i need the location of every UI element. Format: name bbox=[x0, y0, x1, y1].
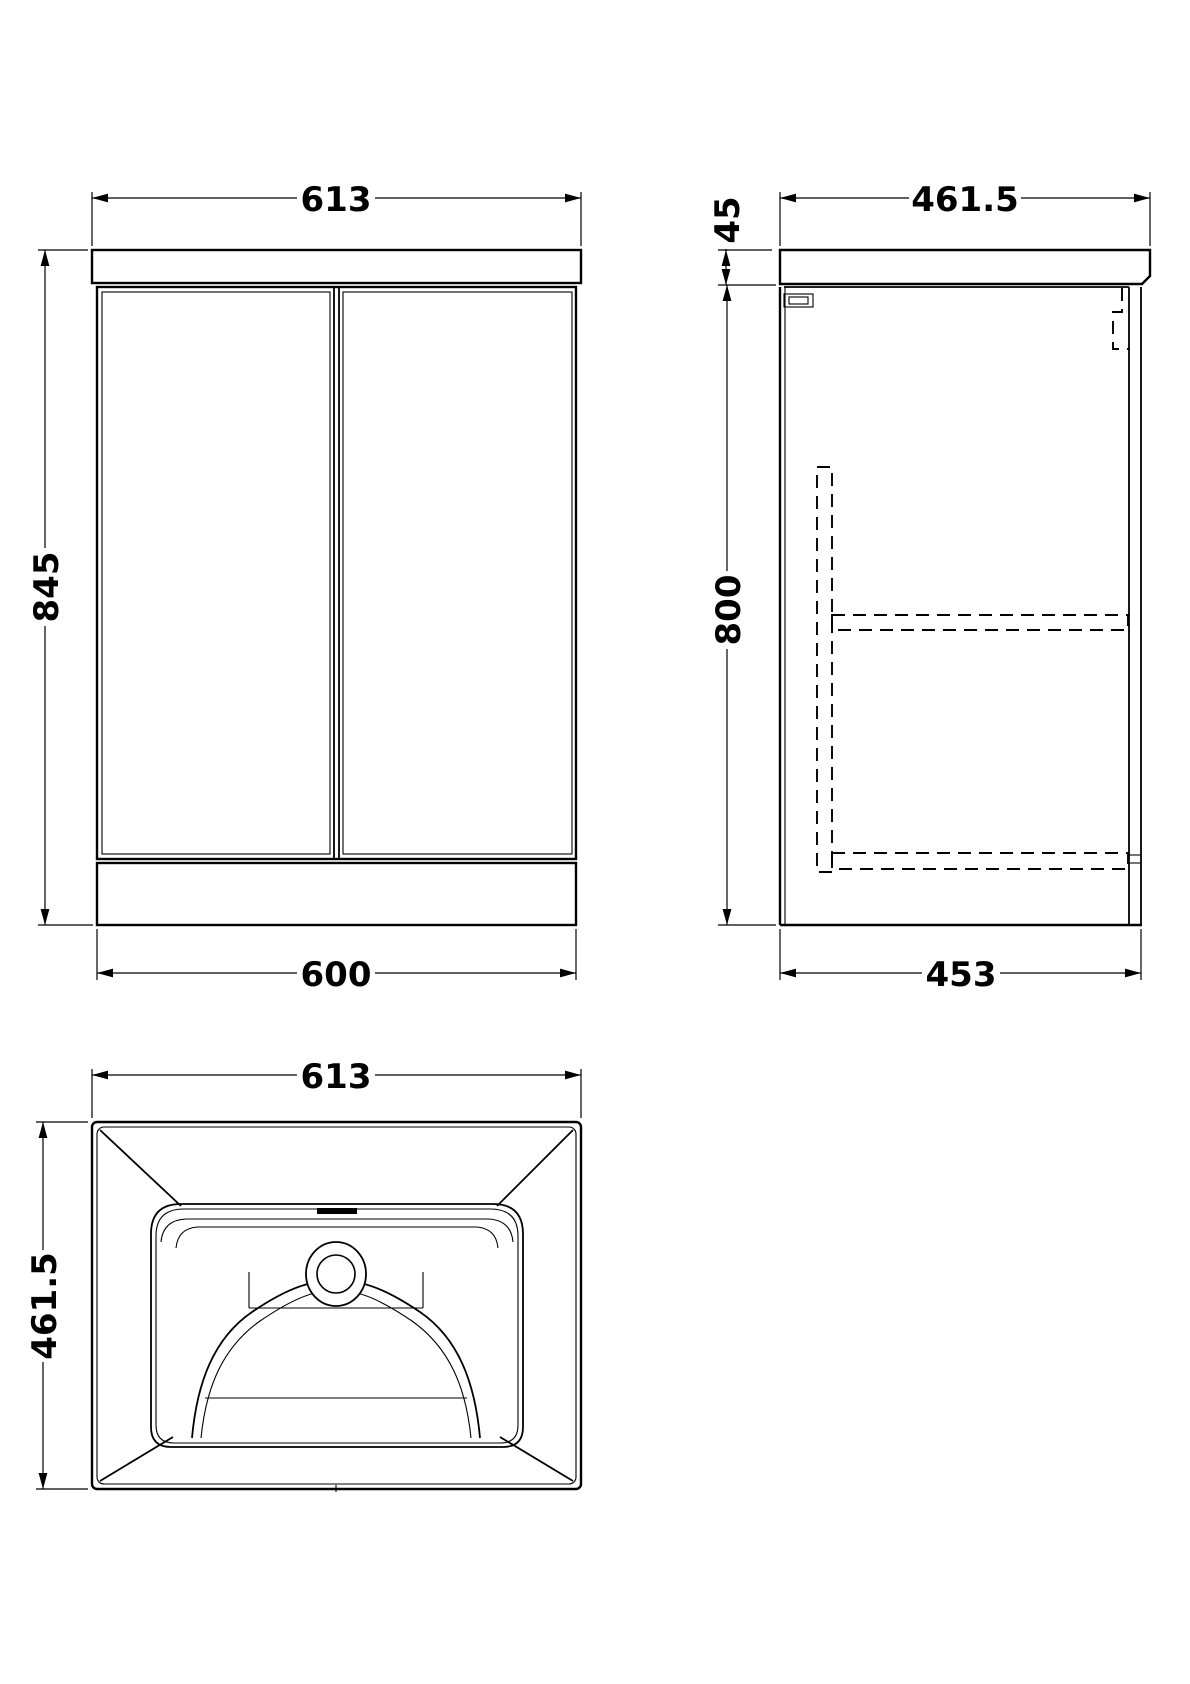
dim-front-bottom-width-label: 600 bbox=[301, 955, 372, 995]
front-view: 613 845 600 bbox=[27, 180, 581, 995]
dim-front-height: 845 bbox=[27, 250, 93, 925]
dim-side-worktop-thickness-label: 45 bbox=[708, 196, 748, 243]
plan-chamfer-tr bbox=[497, 1130, 573, 1206]
plan-rim-contour-1 bbox=[161, 1219, 513, 1242]
dim-side-bottom-depth: 453 bbox=[780, 929, 1141, 995]
front-plinth bbox=[97, 863, 576, 925]
front-door-carcass bbox=[97, 287, 576, 859]
hidden-basin-recess bbox=[1113, 288, 1129, 349]
hinge-plate bbox=[784, 294, 813, 307]
bowl-wall-inner bbox=[201, 1292, 471, 1438]
dim-side-cabinet-height: 800 bbox=[709, 285, 776, 925]
front-door-left-panel bbox=[102, 292, 330, 854]
technical-drawing: 613 845 600 bbox=[0, 0, 1190, 1684]
drawing-sheet: 613 845 600 bbox=[0, 0, 1190, 1684]
dim-side-worktop-thickness: 45 bbox=[708, 191, 776, 285]
dim-front-height-label: 845 bbox=[27, 552, 67, 623]
side-view: 461.5 45 800 453 bbox=[708, 180, 1150, 995]
tap-hole-outer bbox=[306, 1242, 366, 1306]
dim-plan-width: 613 bbox=[92, 1057, 581, 1118]
dim-side-cabinet-height-label: 800 bbox=[709, 575, 749, 646]
dim-front-top-width: 613 bbox=[92, 180, 581, 246]
dim-front-bottom-width: 600 bbox=[97, 929, 576, 995]
dim-front-top-width-label: 613 bbox=[301, 180, 372, 220]
plan-view: 613 461.5 bbox=[25, 1057, 581, 1492]
dim-side-top-depth-label: 461.5 bbox=[911, 180, 1019, 220]
plan-chamfer-br bbox=[500, 1437, 573, 1481]
side-worktop bbox=[780, 250, 1150, 284]
dim-plan-depth-label: 461.5 bbox=[25, 1252, 65, 1360]
hidden-back-panel bbox=[817, 467, 832, 872]
dim-side-top-depth: 461.5 bbox=[780, 180, 1150, 246]
hidden-shelf bbox=[832, 615, 1128, 630]
hinge-plate-inner bbox=[789, 297, 808, 304]
front-door-right-panel bbox=[343, 292, 572, 854]
hidden-bottom-panel bbox=[832, 853, 1128, 869]
dim-plan-depth: 461.5 bbox=[25, 1122, 88, 1489]
plan-chamfer-bl bbox=[100, 1437, 173, 1481]
overflow-slot bbox=[317, 1208, 357, 1214]
dim-plan-width-label: 613 bbox=[301, 1057, 372, 1097]
plan-chamfer-tl bbox=[100, 1130, 181, 1206]
dim-side-bottom-depth-label: 453 bbox=[926, 955, 997, 995]
front-worktop bbox=[92, 250, 581, 283]
